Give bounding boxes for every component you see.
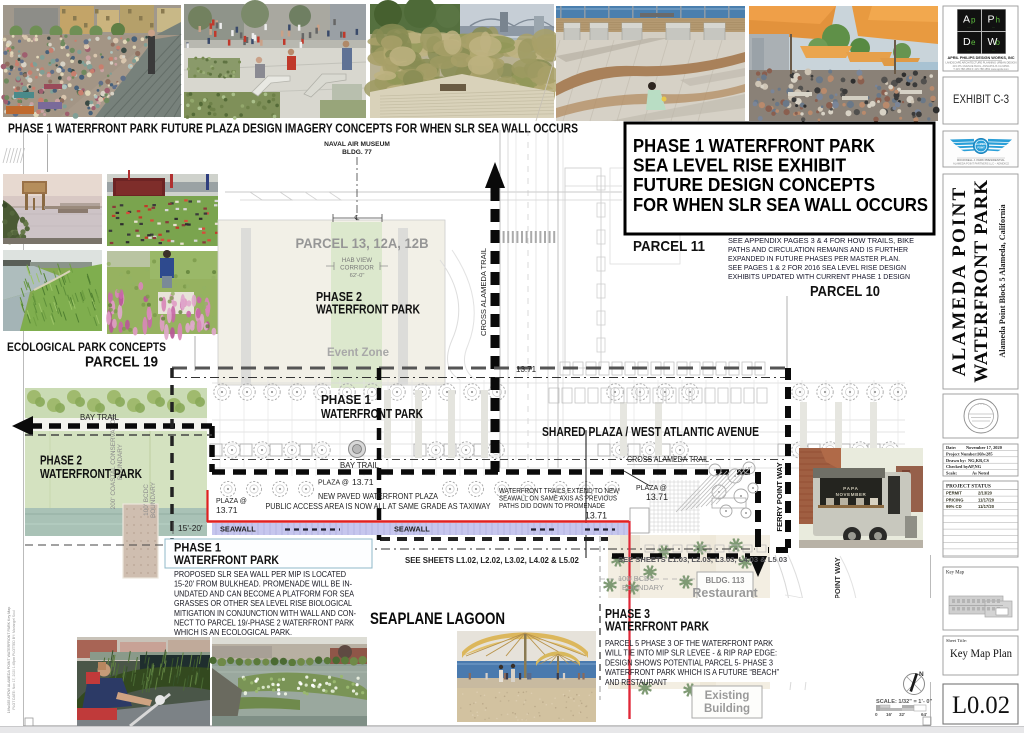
svg-text:WILL TIE INTO MIP SLR LEVEE -: WILL TIE INTO MIP SLR LEVEE - & RIP RAP … [605, 649, 777, 658]
svg-text:32': 32' [899, 712, 905, 717]
svg-text:Checked by:: Checked by: [946, 464, 970, 469]
svg-text:h: h [996, 16, 1000, 25]
svg-text:Sheet Title:: Sheet Title: [946, 638, 967, 643]
svg-text:SEE SHEETS L1.03, L2.03, L3.03: SEE SHEETS L1.03, L2.03, L3.03, L4.03 & … [618, 555, 787, 564]
svg-text:BAY TRAIL: BAY TRAIL [80, 413, 120, 422]
svg-text:11/17/20: 11/17/20 [978, 497, 995, 502]
svg-text:PROPOSED SLR SEA WALL PER MIP: PROPOSED SLR SEA WALL PER MIP IS LOCATED [174, 570, 346, 579]
svg-text:PARCEL 13, 12A, 12B: PARCEL 13, 12A, 12B [296, 235, 429, 251]
svg-text:PROJECT STATUS: PROJECT STATUS [946, 484, 991, 490]
svg-text:....: .... [967, 48, 971, 52]
svg-text:PARCEL 11: PARCEL 11 [633, 238, 705, 255]
svg-text:L0.02: L0.02 [952, 692, 1010, 719]
svg-text:Alameda Point Block 5 Alame: Alameda Point Block 5 Alameda, Californi… [998, 204, 1007, 357]
svg-text:PLAZA @: PLAZA @ [636, 485, 667, 492]
svg-text:15'-20': 15'-20' [178, 523, 203, 533]
svg-text:FERRY POINT WAY: FERRY POINT WAY [775, 462, 784, 531]
svg-text:NEW PAVED WATERFRONT PLAZA: NEW PAVED WATERFRONT PLAZA [318, 491, 438, 501]
svg-text:November 17, 2020: November 17, 2020 [966, 445, 1003, 450]
svg-text:BOUNDARY: BOUNDARY [622, 583, 664, 592]
svg-text:EXHIBIT C-3: EXHIBIT C-3 [953, 94, 1009, 106]
svg-text:WHICH IS AN ECOLOGICAL PARK.: WHICH IS AN ECOLOGICAL PARK. [174, 628, 292, 637]
svg-text:PHASE 2: PHASE 2 [40, 454, 82, 468]
svg-text:WATERFRONT PARK: WATERFRONT PARK [40, 467, 142, 481]
svg-text:0: 0 [875, 712, 878, 717]
svg-text:SEE SHEETS L1.02, L2.02, L3.02: SEE SHEETS L1.02, L2.02, L3.02, L4.02 & … [405, 556, 579, 565]
svg-text:Scale:: Scale: [946, 471, 958, 476]
svg-text:e: e [971, 38, 976, 47]
svg-text:℄: ℄ [354, 215, 360, 222]
svg-text:2/13/20: 2/13/20 [978, 491, 993, 496]
svg-text:BOUNDARY: BOUNDARY [150, 481, 157, 518]
svg-text:NECT TO PARCEL 19/-PHASE 2 WAT: NECT TO PARCEL 19/-PHASE 2 WATERFRONT PA… [174, 619, 354, 628]
svg-text:Drawn by:: Drawn by: [946, 458, 967, 463]
svg-text:BLDG. 77: BLDG. 77 [342, 149, 372, 156]
svg-text:Existing: Existing [705, 690, 750, 702]
svg-text:PRICING: PRICING [946, 497, 963, 502]
svg-text:Key Map: Key Map [946, 571, 965, 576]
svg-text:PHASE 1: PHASE 1 [321, 392, 371, 407]
svg-text:PLAZA @: PLAZA @ [216, 498, 247, 505]
svg-text:FOR WHEN SLR SEA WALL OCCURS: FOR WHEN SLR SEA WALL OCCURS [633, 195, 928, 215]
svg-text:16fw285: 16fw285 [977, 451, 993, 456]
svg-text:100' BCDC: 100' BCDC [143, 484, 150, 516]
svg-text:EXHIBITS UPDATED WITH CURRENT: EXHIBITS UPDATED WITH CURRENT PHASE 1 DE… [728, 272, 910, 281]
svg-text:PAPA: PAPA [843, 486, 859, 491]
svg-text:....: .... [992, 25, 996, 29]
svg-text:WATERFRONT PARK: WATERFRONT PARK [321, 406, 424, 421]
svg-text:11/17/20: 11/17/20 [978, 504, 995, 509]
svg-text:DESIGN SHOWS POTENTIAL PARCEL: DESIGN SHOWS POTENTIAL PARCEL 5- PHASE 3 [605, 658, 773, 667]
svg-text:13.71: 13.71 [646, 492, 668, 502]
svg-text:Date:: Date: [946, 445, 957, 450]
svg-text:PARCEL 5 PHASE 3 OF THE WATER: PARCEL 5 PHASE 3 OF THE WATERFRONT PARK [605, 639, 773, 648]
svg-text:p: p [971, 16, 976, 25]
svg-text:SEA LEVEL RISE EXHIBIT: SEA LEVEL RISE EXHIBIT [633, 156, 846, 176]
svg-text:AND RESTAURANT: AND RESTAURANT [605, 678, 667, 687]
svg-text:SEAWALL: SEAWALL [394, 525, 430, 534]
svg-text:ROCKWELL J. PARK PRESIDENTIAL: ROCKWELL J. PARK PRESIDENTIAL [957, 158, 1005, 162]
svg-text:MITIGATION IN CONJUNCTION WITH: MITIGATION IN CONJUNCTION WITH WALL AND … [174, 609, 356, 618]
svg-text:UNDATED AND CAN BECOME A PLATF: UNDATED AND CAN BECOME A PLATFORM FOR SE… [174, 589, 354, 598]
svg-text:64': 64' [921, 712, 927, 717]
svg-text:62'-0": 62'-0" [350, 273, 365, 279]
svg-text:SCALE: 1/32" = 1’- 0": SCALE: 1/32" = 1’- 0" [876, 699, 932, 705]
svg-text:SEAWALL: SEAWALL [220, 525, 256, 534]
svg-text:o: o [996, 38, 1001, 47]
svg-text:NAVAL AIR MUSEUM: NAVAL AIR MUSEUM [324, 141, 390, 148]
svg-text:SEE APPENDIX PAGES 3 & 4 FOR: SEE APPENDIX PAGES 3 & 4 FOR HOW TRAILS,… [728, 236, 914, 245]
svg-text:ALAMEDA POINT PARTNERS LLC –: ALAMEDA POINT PARTNERS LLC – ADMDK22 [953, 162, 1009, 166]
svg-text:WATERFRONT PARK: WATERFRONT PARK [316, 302, 420, 317]
svg-text:WATERFRONT PARK: WATERFRONT PARK [605, 620, 709, 634]
svg-text:SEAPLANE LAGOON: SEAPLANE LAGOON [370, 610, 505, 628]
svg-text:SEE PAGES 1 & 2 FOR 2016 SEA L: SEE PAGES 1 & 2 FOR 2016 SEA LEVEL RISE … [728, 263, 906, 272]
svg-text:EXPANDED IN FUTURE PHASES PER: EXPANDED IN FUTURE PHASES PER MASTER PLA… [728, 254, 900, 263]
svg-text:....: .... [967, 25, 971, 29]
svg-text:Building: Building [704, 703, 750, 715]
svg-text:BAY TRAIL: BAY TRAIL [340, 461, 380, 470]
svg-text:PHASE 1: PHASE 1 [174, 543, 222, 555]
svg-text:Project Number:: Project Number: [946, 451, 978, 456]
svg-text:PERMIT: PERMIT [946, 491, 962, 496]
svg-text:APRIL PHILIPS DESIGN WORKS, IN: APRIL PHILIPS DESIGN WORKS, INC [947, 56, 1014, 60]
svg-text:GRASSES OR OTHER SEA LEVEL RIS: GRASSES OR OTHER SEA LEVEL RISE BIOLOGIC… [174, 599, 352, 608]
svg-text:SHARED PLAZA / WEST ATLANTIC A: SHARED PLAZA / WEST ATLANTIC AVENUE [542, 424, 759, 439]
svg-text:FUTURE DESIGN CONCEPTS: FUTURE DESIGN CONCEPTS [633, 175, 875, 195]
svg-text:100' BCDC: 100' BCDC [618, 574, 655, 583]
svg-text:13.71: 13.71 [216, 505, 238, 515]
svg-text:P: P [988, 14, 995, 26]
svg-text:NG,KR,CS: NG,KR,CS [968, 458, 990, 463]
svg-text:PATHS AND CIRCULATION REMAINS: PATHS AND CIRCULATION REMAINS AND IS FUR… [728, 245, 908, 254]
svg-text:16': 16' [886, 712, 892, 717]
svg-text:WATERFRONT PARK WHICH IS A FUT: WATERFRONT PARK WHICH IS A FUTURE “BEACH… [605, 668, 779, 677]
svg-text:WATERFRONT PARK: WATERFRONT PARK [174, 555, 280, 567]
svg-text:15-20' FROM BULKHEAD. PROMENAD: 15-20' FROM BULKHEAD. PROMENADE WILL BE … [174, 580, 352, 589]
svg-text:99% CD: 99% CD [946, 504, 962, 509]
svg-text:CROSS ALAMEDA TRAIL: CROSS ALAMEDA TRAIL [479, 248, 488, 336]
svg-text:PARCEL 19: PARCEL 19 [85, 354, 158, 371]
svg-text:13.71: 13.71 [352, 477, 374, 487]
svg-text:WATERFRONT PARK: WATERFRONT PARK [971, 179, 992, 383]
svg-text:AP,NG: AP,NG [968, 464, 982, 469]
svg-text:LANDSCAPE ARCHITECTURE PLANNI: LANDSCAPE ARCHITECTURE PLANNING URBAN DE… [945, 61, 1016, 65]
svg-text:PLAZA @: PLAZA @ [318, 480, 349, 487]
svg-text:N: N [919, 671, 924, 678]
svg-text:16fw285 APDW ALAMEDA POINT W: 16fw285 APDW ALAMEDA POINT WATERFRONT PA… [7, 607, 11, 713]
svg-text:POINT: POINT [977, 147, 985, 150]
svg-text:BLDG. 113: BLDG. 113 [706, 576, 746, 585]
svg-text:HAB VIEW: HAB VIEW [342, 257, 372, 264]
svg-text:T 415.788.1850 F 415.788.185: T 415.788.1850 F 415.788.1851 www.apdw.c… [953, 67, 1009, 71]
svg-text:13.71: 13.71 [516, 365, 537, 374]
svg-text:PUBLIC ACCESS AREA IS NOW ALL: PUBLIC ACCESS AREA IS NOW ALL AT SAME GR… [266, 501, 491, 511]
svg-text:ECOLOGICAL PARK CONCEPTS: ECOLOGICAL PARK CONCEPTS [7, 340, 166, 354]
svg-text:Restaurant: Restaurant [692, 586, 758, 600]
svg-text:CROSS ALAMEDA TRAIL: CROSS ALAMEDA TRAIL [627, 455, 709, 464]
svg-text:A: A [963, 14, 970, 26]
svg-text:PHASE 1 WATERFRONT PARK FUTURE: PHASE 1 WATERFRONT PARK FUTURE PLAZA DES… [8, 121, 578, 136]
svg-text:ALAMEDA POINT: ALAMEDA POINT [949, 186, 970, 377]
svg-text:Event Zone: Event Zone [327, 347, 389, 359]
svg-text:....: .... [992, 48, 996, 52]
svg-text:CORRIDOR: CORRIDOR [340, 265, 374, 272]
svg-text:PARCEL 10: PARCEL 10 [810, 283, 880, 300]
svg-text:As Noted: As Noted [972, 471, 990, 476]
svg-text:~ ~: ~ ~ [979, 427, 984, 431]
svg-text:~ ~ ~: ~ ~ ~ [977, 403, 984, 407]
svg-text:13.71: 13.71 [585, 511, 607, 521]
svg-text:PLOT DATE: Nov 17, 2020 1:4: PLOT DATE: Nov 17, 2020 1:45pm PLOTTED B… [12, 610, 16, 709]
svg-text:PATHS DID DOWN TO PROMENADE: PATHS DID DOWN TO PROMENADE [499, 501, 605, 510]
svg-text:NOVEMBER: NOVEMBER [836, 492, 867, 497]
svg-text:Key Map Plan: Key Map Plan [950, 648, 1012, 660]
svg-text:D: D [963, 36, 971, 48]
svg-text:PHASE 1 WATERFRONT PARK: PHASE 1 WATERFRONT PARK [633, 136, 875, 156]
